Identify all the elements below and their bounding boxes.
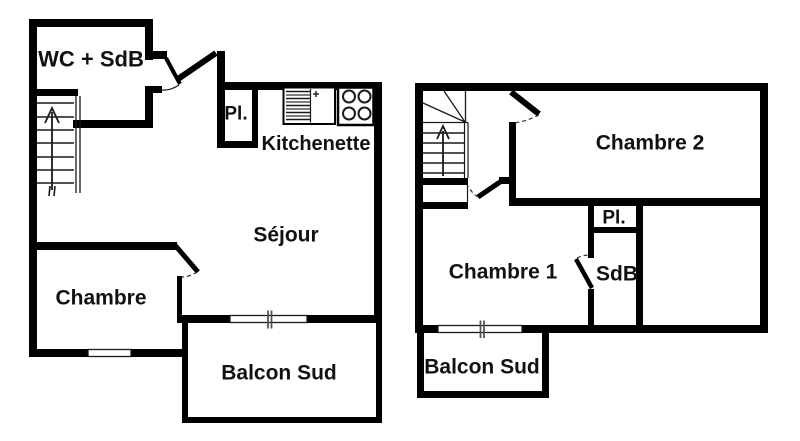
stair-break-tick [54,186,55,196]
wc-door-jamb [145,51,167,59]
closet-bathroom-right-wall [636,198,643,325]
windows [438,321,522,339]
floor-plans-svg: WC + SdB Pl. Kitchenette Séjour Chambre … [0,0,800,441]
sink-drainer-stripes [286,92,310,120]
staircase [37,96,80,196]
balcony-bottom-wall [417,391,549,398]
bedroom2-door-swing-arc [513,115,539,123]
wc-door-leaf-icon [166,58,180,84]
understair-wall-lower [415,202,468,209]
bedroom2-left-wall [509,122,516,206]
room-label-living-room: Séjour [253,224,318,247]
bedroom-right-jamb [177,276,182,318]
room-label-closet: Pl. [602,208,625,229]
outer-wall-top [415,83,768,91]
bedroom1-door-jamb [499,177,511,184]
room-labels: Chambre 2 Pl. Chambre 1 SdB Balcon Sud [424,132,704,379]
outer-wall-right [374,82,382,322]
bedroom-window [88,350,131,357]
entry-closet-left-wall [217,51,225,148]
balcony-left-wall [417,333,424,398]
doors [469,92,592,288]
bedroom-door-swing-arc [182,272,197,277]
kitchen-unit [284,88,374,126]
bedroom1-door-leaf-icon [478,182,500,197]
bedroom-door-leaf-icon [174,244,198,272]
closet-right-wall [252,89,258,148]
bathroom-left-wall-upper [588,233,594,258]
bathroom-door-leaf-icon [576,259,592,288]
room-label-bathroom: SdB [596,263,638,286]
bedroom-top-wall [29,242,177,250]
outer-wall-right [760,83,768,333]
room-label-bedroom1: Chambre 1 [449,261,558,284]
bathroom-left-wall-lower [588,289,594,325]
room-label-kitchenette: Kitchenette [262,133,371,155]
bedroom1-door-swing-arc [469,186,478,197]
entry-door-leaf-icon [178,53,216,79]
room-label-bedroom2: Chambre 2 [596,132,705,155]
room-label-closet: Pl. [224,104,247,125]
stair-top-wall [29,89,78,96]
upper-floor-plan: Chambre 2 Pl. Chambre 1 SdB Balcon Sud [415,83,768,398]
room-label-balcony: Balcon Sud [424,356,540,379]
closet-bottom-wall [217,141,258,148]
outer-wall-top [29,19,153,27]
room-label-balcony: Balcon Sud [221,362,337,385]
balcony-right-wall [376,322,382,423]
outer-wall-left [29,19,37,357]
ground-floor-plan: WC + SdB Pl. Kitchenette Séjour Chambre … [29,19,382,423]
wc-door-swing-arc [161,85,179,90]
stair-break-tick [49,186,50,196]
room-label-bedroom: Chambre [55,287,146,310]
stair-treads [423,133,465,173]
balcony-bottom-wall [182,417,382,423]
floor-plan-image: WC + SdB Pl. Kitchenette Séjour Chambre … [0,0,800,441]
room-label-wc-sdb: WC + SdB [38,47,144,72]
balcony-right-wall [542,333,549,398]
wc-bottom-wall [73,120,153,128]
bedroom2-door-leaf-icon [511,92,539,114]
balcony-left-wall [182,322,188,423]
understair-wall-upper [418,178,468,185]
staircase [423,91,468,202]
